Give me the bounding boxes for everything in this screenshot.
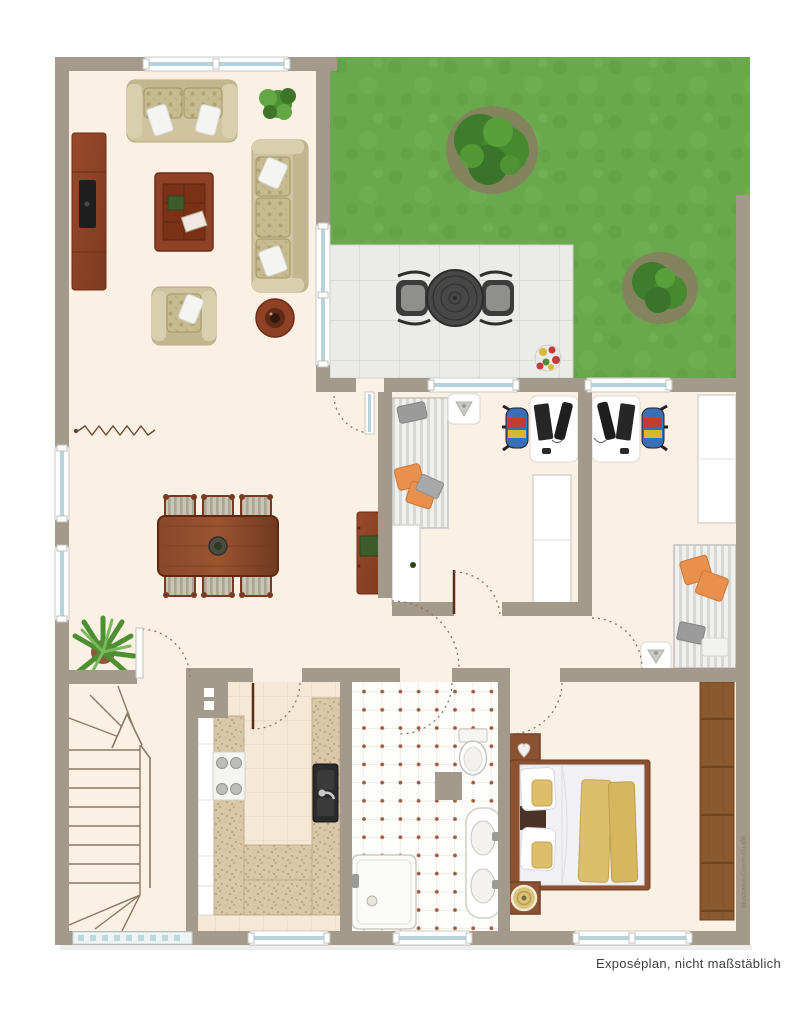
wall-garden-house — [316, 378, 356, 392]
stove-icon — [213, 752, 245, 800]
floor-plan-canvas: Illustration©immoGrafik Exposéplan, nich… — [0, 0, 805, 1024]
wall-kitchen-bath — [340, 682, 352, 931]
three-seat-sofa-icon — [252, 140, 308, 292]
wall-garden-house — [517, 378, 587, 392]
white-pillow-icon — [702, 638, 728, 656]
plan-shadow — [60, 945, 752, 950]
book-icon — [168, 196, 184, 210]
daybed-icon — [392, 398, 448, 528]
yellow-cushion-icon — [532, 842, 552, 868]
wall-bath-bedroom — [498, 682, 510, 931]
bedroom-wardrobe-icon — [700, 682, 734, 920]
corner-washbasin-icon — [641, 642, 671, 670]
desk-icon — [592, 396, 640, 462]
two-seat-sofa-icon — [127, 80, 237, 142]
tv-sideboard-icon — [72, 133, 106, 290]
yellow-blanket-icon — [578, 780, 612, 883]
yellow-cushion-icon — [532, 780, 552, 806]
window-study1 — [428, 378, 519, 392]
chimney-flue-icon — [198, 682, 228, 718]
wall-stair-top — [55, 670, 137, 684]
shower-icon — [352, 855, 416, 929]
window-kitchen — [248, 931, 330, 945]
wall-hall-south — [452, 668, 510, 682]
caption-text: Exposéplan, nicht maßstäblich — [596, 956, 781, 971]
wall-hall-south — [560, 668, 736, 682]
double-bed-icon — [510, 760, 650, 890]
window-bathroom — [393, 931, 472, 945]
kitchen-sink-icon — [313, 764, 338, 822]
wall-study1-hall — [392, 602, 454, 616]
round-side-table-icon — [256, 299, 294, 337]
potted-plant-living-icon — [259, 88, 296, 120]
wardrobe-icon — [698, 395, 736, 523]
floor-plan-page: Illustration©immoGrafik Exposéplan, nich… — [0, 0, 805, 1024]
corner-washbasin-icon — [448, 394, 480, 424]
mouse-icon — [620, 448, 629, 454]
plant-box-icon — [360, 536, 380, 556]
wardrobe-center-icon — [533, 475, 571, 605]
wall-hall-south — [302, 668, 400, 682]
window-dining-left-1 — [55, 445, 69, 522]
wall-garden-house — [384, 378, 430, 392]
window-glass-block-stairs — [73, 932, 192, 944]
window-living-top — [143, 57, 290, 71]
coffee-table-icon — [155, 173, 213, 251]
flower-tub-icon — [535, 345, 561, 371]
wall-study-divider — [578, 392, 592, 616]
tall-units-icon — [198, 688, 214, 915]
wall-right — [736, 195, 750, 945]
yellow-blanket-icon — [608, 782, 637, 883]
double-washbasin-icon — [466, 808, 501, 918]
window-bedroom — [573, 931, 692, 945]
wardrobe-left-icon — [392, 525, 420, 605]
toilet-icon — [459, 729, 487, 775]
window-dining-left-2 — [55, 545, 69, 622]
dining-table-icon — [158, 516, 278, 576]
daybed-icon — [674, 545, 736, 668]
watermark-text: Illustration©immoGrafik — [740, 835, 748, 908]
wall-study1-hall — [502, 602, 578, 616]
desk-icon — [530, 396, 578, 462]
shower-faucet-icon — [352, 874, 359, 888]
wall-dining-study1 — [378, 392, 392, 598]
partition-stub — [435, 772, 462, 800]
window-living-terrace — [316, 223, 330, 367]
armchair-icon — [152, 287, 216, 345]
patio-table-icon — [427, 270, 483, 326]
wall-garden-house — [670, 378, 750, 392]
nightstand-lamp-icon — [508, 882, 540, 914]
window-study2 — [585, 378, 672, 392]
wall-stair-kitchen — [186, 670, 198, 931]
mouse-icon — [542, 448, 551, 454]
